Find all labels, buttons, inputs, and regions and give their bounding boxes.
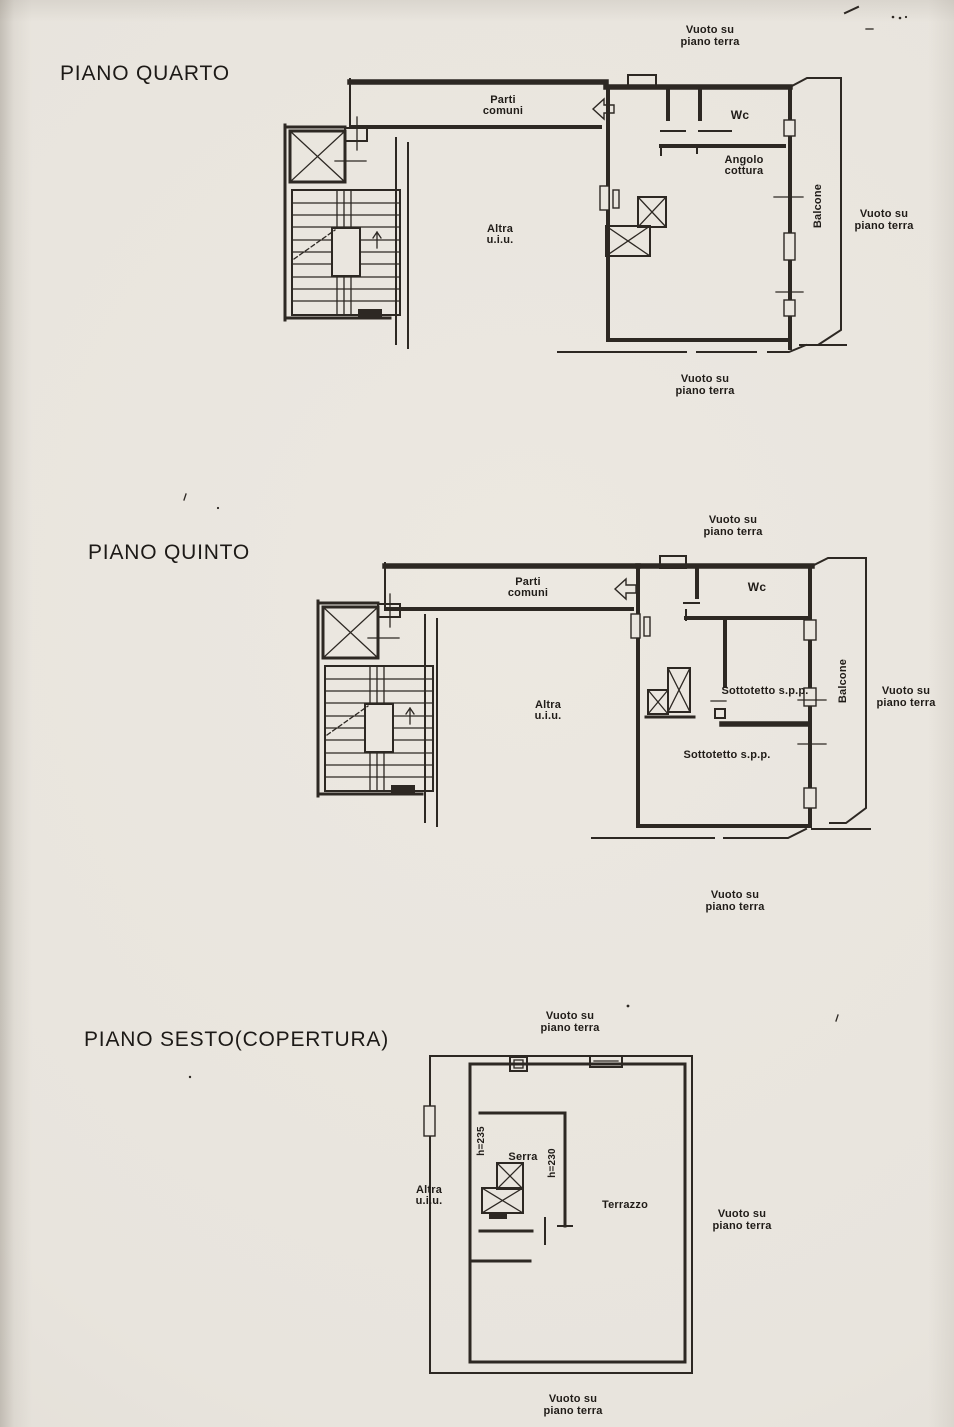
label-balcone: Balcone bbox=[812, 184, 824, 228]
balcone-strip bbox=[774, 87, 841, 348]
apartment-outline bbox=[592, 556, 870, 838]
label-parti-comuni: comuni bbox=[508, 587, 548, 599]
corridor-parti-comuni bbox=[350, 79, 606, 128]
door-jamb bbox=[613, 190, 619, 208]
label-height-serra: h=235 bbox=[476, 1126, 487, 1156]
floorplan-piano-quarto: Vuoto su piano terra Parti comuni Wc Ang… bbox=[0, 0, 954, 470]
window-fixture bbox=[784, 300, 795, 316]
label-sottotetto-lower: Sottotetto s.p.p. bbox=[683, 749, 770, 761]
stair-landing bbox=[332, 228, 360, 276]
entrance-arrow-icon bbox=[615, 579, 636, 599]
label-altra-uiu: u.i.u. bbox=[535, 710, 562, 722]
party-wall bbox=[425, 615, 437, 826]
section-cut-line bbox=[294, 230, 335, 259]
party-wall bbox=[396, 138, 408, 348]
section-cut-line bbox=[327, 706, 368, 735]
label-height-wall: h=230 bbox=[547, 1148, 558, 1178]
wc-room bbox=[661, 87, 784, 155]
label-vuoto-right: piano terra bbox=[876, 697, 936, 709]
label-vuoto-top: Vuoto su bbox=[546, 1010, 594, 1022]
floorplan-piano-sesto: Vuoto su piano terra Serra h=235 h=230 A… bbox=[0, 950, 954, 1427]
label-vuoto-top: Vuoto su bbox=[709, 514, 757, 526]
label-parti-comuni: comuni bbox=[483, 105, 523, 117]
label-vuoto-bottom: Vuoto su bbox=[711, 889, 759, 901]
scan-artifacts bbox=[845, 7, 907, 29]
window-fixture bbox=[345, 128, 367, 141]
label-serra: Serra bbox=[508, 1151, 538, 1163]
label-vuoto-right: piano terra bbox=[712, 1220, 772, 1232]
label-altra-uiu: u.i.u. bbox=[487, 234, 514, 246]
floorplan-piano-quinto: Vuoto su piano terra Parti comuni Wc Sot… bbox=[0, 470, 954, 950]
stairwell-block bbox=[318, 594, 437, 826]
window-fixture bbox=[784, 233, 795, 260]
label-vuoto-bottom: Vuoto su bbox=[681, 373, 729, 385]
door-jamb bbox=[600, 186, 609, 210]
roof-outline bbox=[424, 1056, 692, 1373]
label-altra-uiu: u.i.u. bbox=[416, 1195, 443, 1207]
label-sottotetto-upper: Sottotetto s.p.p. bbox=[721, 685, 808, 697]
stair-landing bbox=[365, 704, 393, 752]
label-vuoto-right: Vuoto su bbox=[860, 208, 908, 220]
stair-steps bbox=[325, 679, 433, 777]
label-balcone: Balcone bbox=[837, 659, 849, 703]
door-jamb bbox=[631, 614, 640, 638]
label-vuoto-right: Vuoto su bbox=[718, 1208, 766, 1220]
label-wc: Wc bbox=[748, 580, 767, 594]
internal-stair bbox=[482, 1163, 523, 1219]
label-vuoto-top: piano terra bbox=[540, 1022, 600, 1034]
label-vuoto-bottom: Vuoto su bbox=[549, 1393, 597, 1405]
label-vuoto-bottom: piano terra bbox=[705, 901, 765, 913]
door-jamb bbox=[644, 617, 650, 636]
stair-steps bbox=[292, 203, 400, 301]
label-vuoto-right: Vuoto su bbox=[882, 685, 930, 697]
label-vuoto-top: piano terra bbox=[680, 36, 740, 48]
scan-artifacts bbox=[184, 494, 219, 509]
label-vuoto-top: Vuoto su bbox=[686, 24, 734, 36]
scanned-floorplan-page: PIANO QUARTO PIANO QUINTO PIANO SESTO(CO… bbox=[0, 0, 954, 1427]
label-vuoto-bottom: piano terra bbox=[543, 1405, 603, 1417]
entrance-arrow-icon bbox=[593, 99, 614, 119]
label-angolo-cottura: cottura bbox=[725, 165, 764, 177]
label-wc: Wc bbox=[731, 108, 750, 122]
internal-stair bbox=[646, 668, 694, 717]
label-terrazzo: Terrazzo bbox=[602, 1199, 648, 1211]
label-vuoto-bottom: piano terra bbox=[675, 385, 735, 397]
window-fixture bbox=[804, 620, 816, 640]
window-fixture bbox=[804, 788, 816, 808]
stairwell-block bbox=[285, 117, 408, 348]
window-fixture bbox=[784, 120, 795, 136]
label-vuoto-right: piano terra bbox=[854, 220, 914, 232]
label-vuoto-top: piano terra bbox=[703, 526, 763, 538]
sottotetto-partitions bbox=[711, 620, 810, 732]
window-fixture bbox=[424, 1106, 435, 1136]
